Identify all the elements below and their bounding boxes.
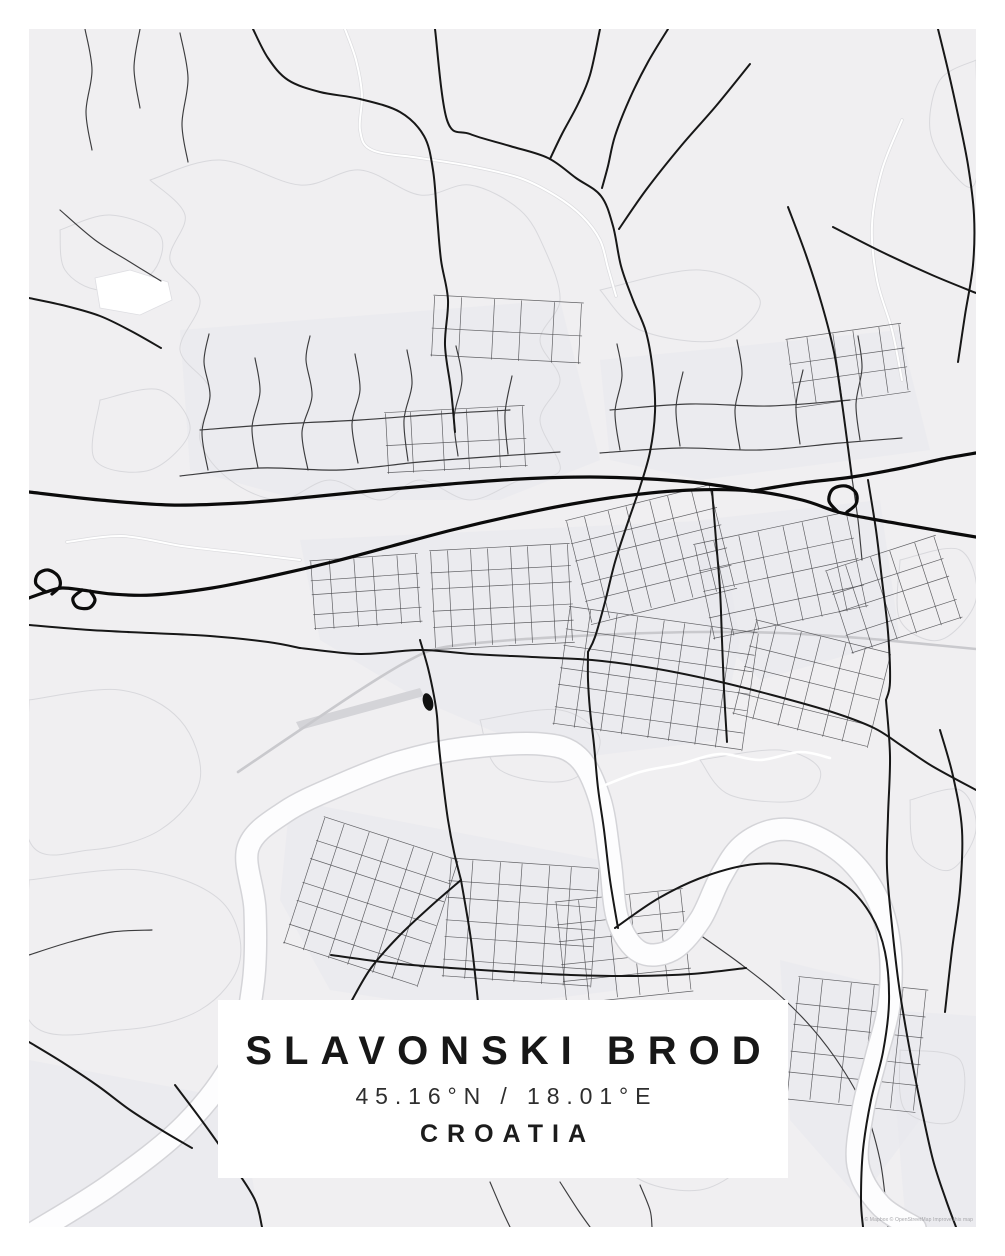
- title-card: SLAVONSKI BROD 45.16°N / 18.01°E CROATIA: [218, 1000, 788, 1178]
- country-label: CROATIA: [411, 1122, 595, 1147]
- map-attribution: © Mapbox © OpenStreetMap Improve this ma…: [865, 1217, 973, 1223]
- map-poster: SLAVONSKI BROD 45.16°N / 18.01°E CROATIA…: [0, 0, 1005, 1256]
- page-title: SLAVONSKI BROD: [233, 1031, 772, 1071]
- coordinates-label: 45.16°N / 18.01°E: [349, 1085, 658, 1108]
